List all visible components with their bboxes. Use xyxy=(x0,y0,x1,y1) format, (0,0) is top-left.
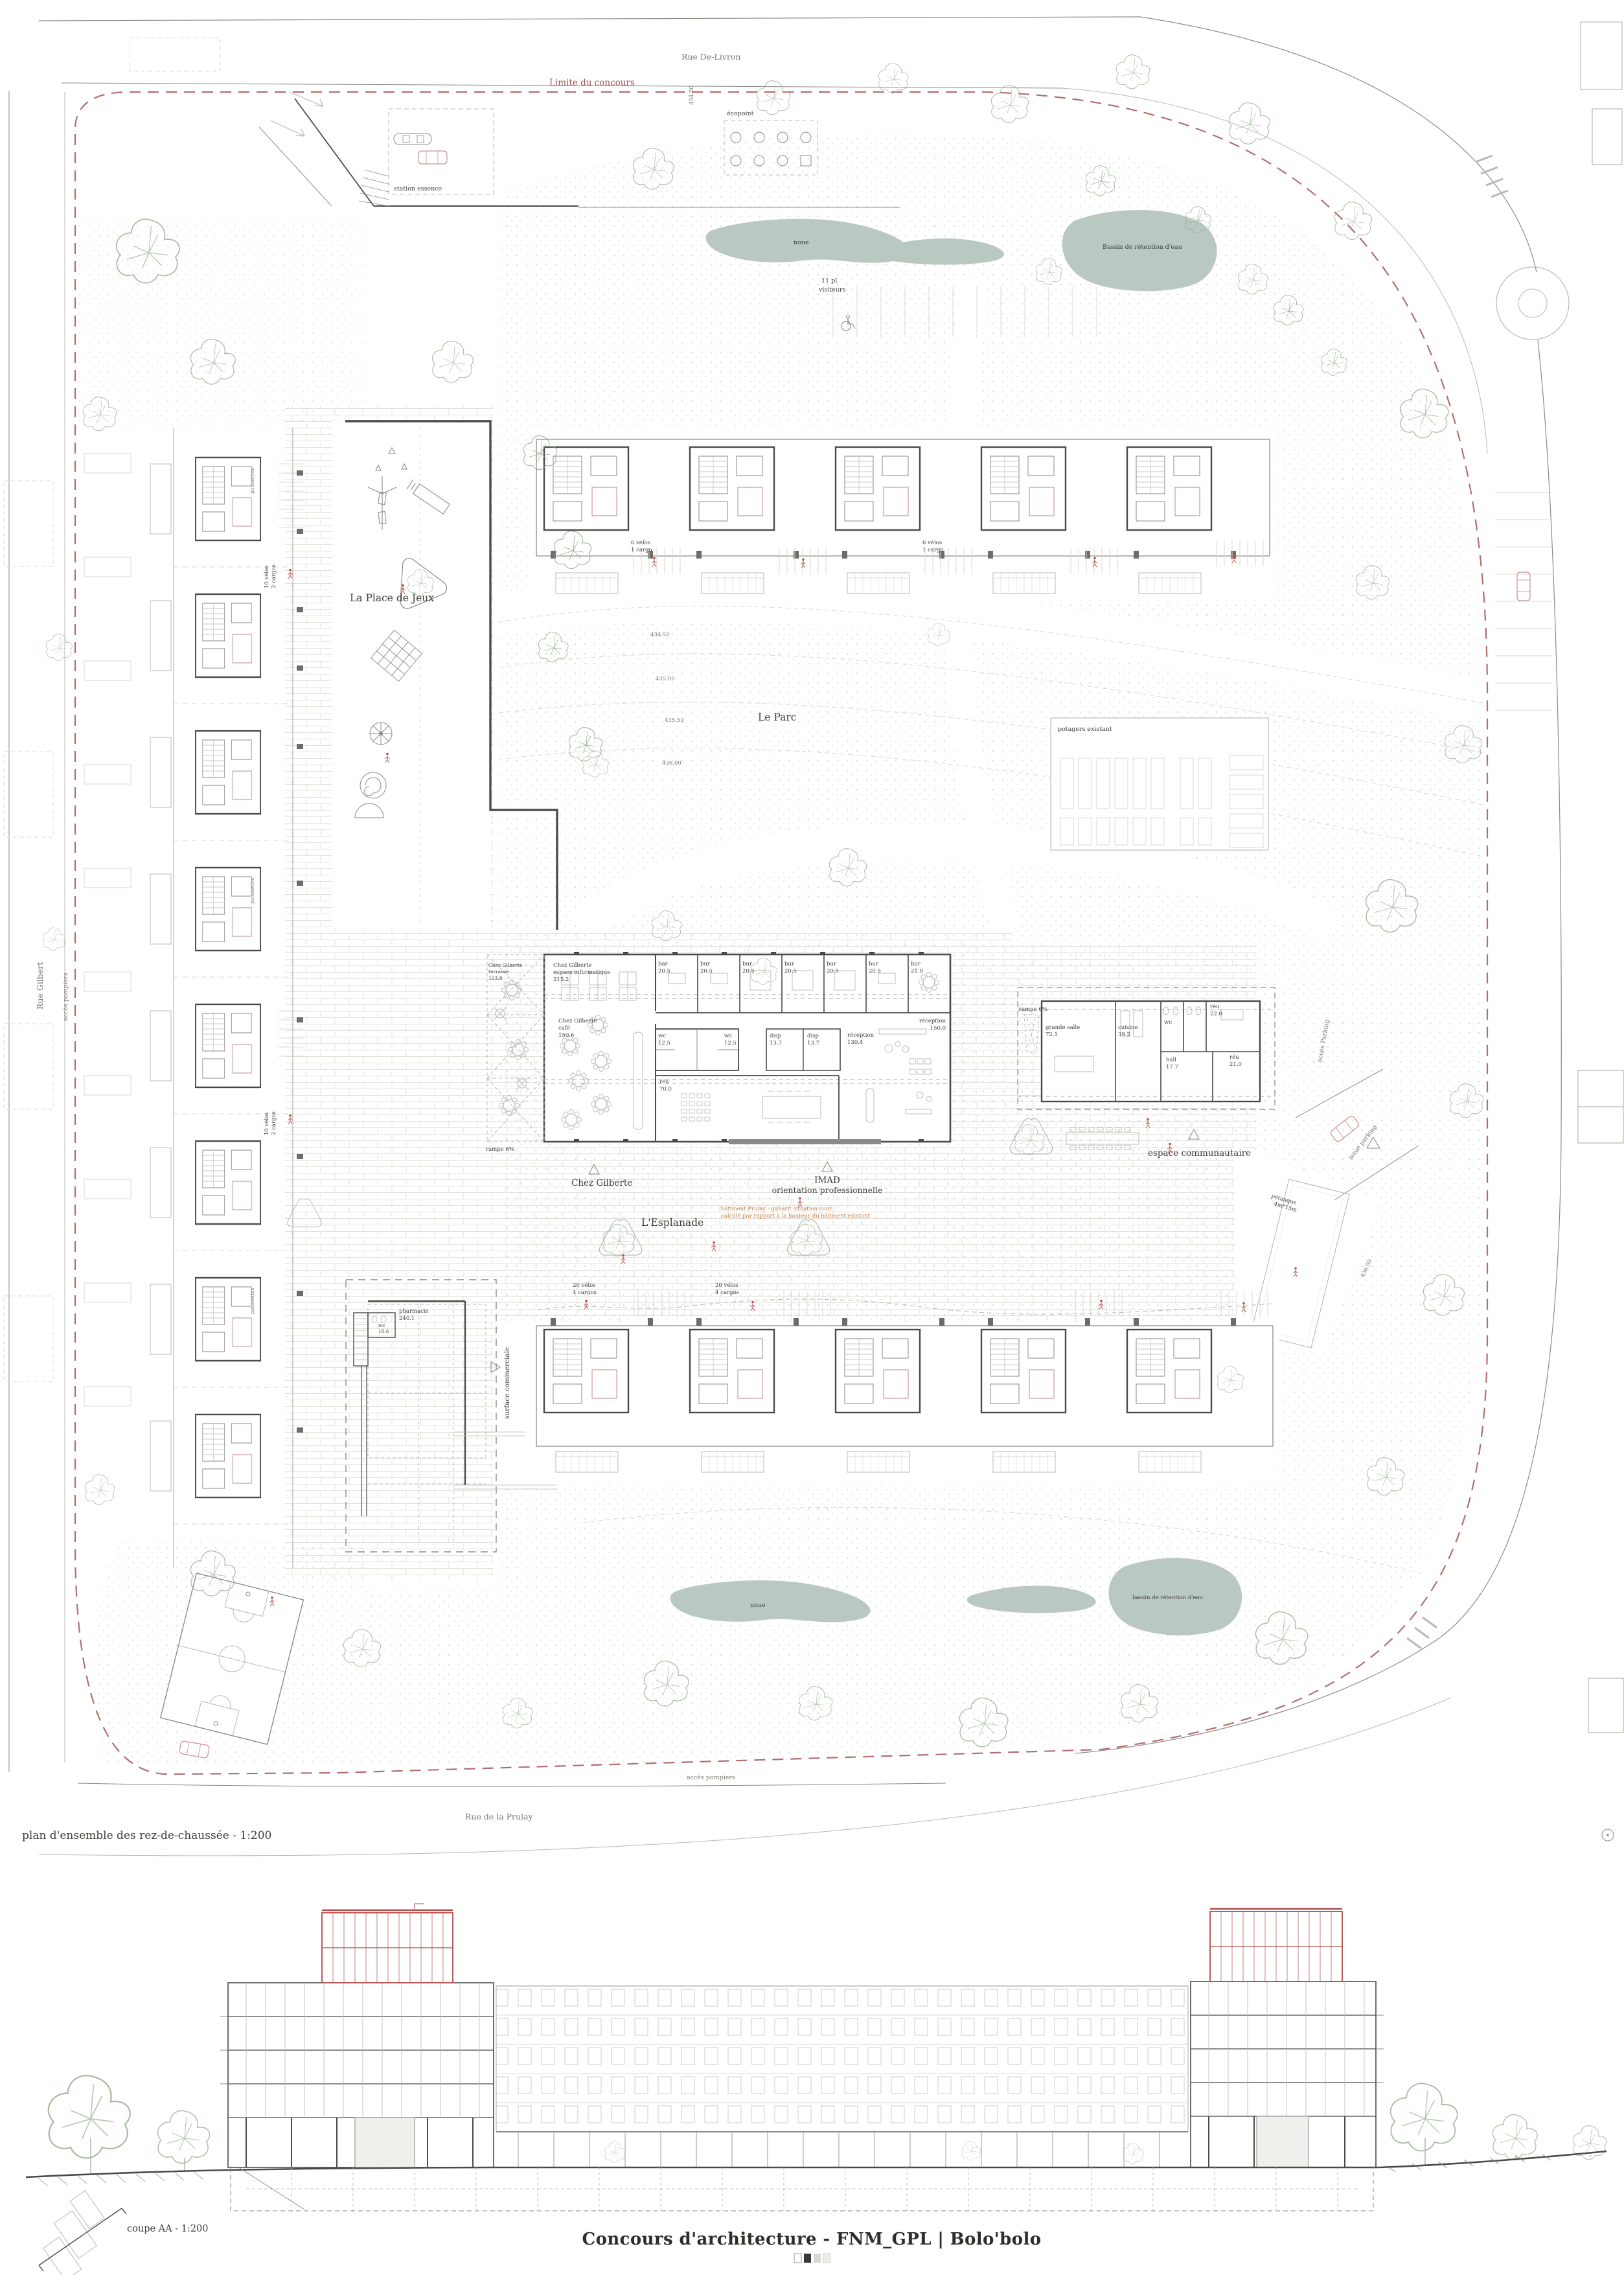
community-gardens: potagers existant xyxy=(1051,718,1268,850)
bike-count-label: 10 vélos xyxy=(263,565,270,588)
tree-icon xyxy=(1334,202,1371,240)
noue-top-label: noue xyxy=(794,239,809,246)
contour-label-43450: 434.50 xyxy=(650,632,670,638)
basin-top-label: Bassin de rétention d'eau xyxy=(1103,244,1182,251)
room-label: café xyxy=(558,1024,570,1032)
tree-icon xyxy=(962,2142,981,2160)
page-indicator xyxy=(794,2254,830,2263)
poussettes-label: poussettes xyxy=(249,467,255,494)
section-right-tower xyxy=(1191,1909,1384,2167)
room-label: 39.2 xyxy=(1118,1032,1130,1038)
room-label: 12.5 xyxy=(658,1040,670,1046)
room-label: bur xyxy=(700,961,711,967)
contour-label-43600: 436.00 xyxy=(662,760,681,767)
orange-note-line2: calculé par rapport à la hauteur du bâti… xyxy=(721,1212,871,1219)
street-label-top: Rue De-Livron xyxy=(681,52,740,62)
car-icon xyxy=(1517,572,1530,601)
carousel xyxy=(370,722,392,745)
room-label: 13.7 xyxy=(770,1040,782,1046)
tree-icon xyxy=(1391,2083,1458,2151)
tree-icon xyxy=(85,1475,115,1505)
room-label: 20.5 xyxy=(784,968,797,975)
tree-icon xyxy=(1229,103,1270,144)
room-label: disp xyxy=(770,1033,782,1039)
room-label: 21.0 xyxy=(1229,1061,1242,1068)
plan-caption: plan d'ensemble des rez-de-chaussée - 1:… xyxy=(22,1829,271,1842)
contour-label-43550: 435.50 xyxy=(665,717,684,724)
gardens-label: potagers existant xyxy=(1058,726,1112,733)
room-label: wc xyxy=(378,1322,385,1328)
tree-icon xyxy=(878,64,908,93)
tree-icon xyxy=(1116,55,1150,89)
visitors-parking-label-2: visiteurs xyxy=(818,286,845,294)
room-label: 20.5 xyxy=(869,968,881,975)
room-label: 13.7 xyxy=(807,1040,819,1046)
noue-bottom-label: noue xyxy=(750,1602,766,1609)
room-label: 70.0 xyxy=(659,1086,672,1092)
tree-icon xyxy=(432,341,473,383)
room-label: 20.5 xyxy=(827,968,839,975)
room-label: wc xyxy=(724,1033,732,1039)
chez-gilberte-label: Chez Gilberte xyxy=(571,1178,632,1188)
esplanade-label: L'Esplanade xyxy=(641,1217,703,1229)
room-label: 10.6 xyxy=(378,1328,389,1334)
room-label: bar xyxy=(658,961,669,967)
orange-note-line1: bâtiment Prulay - gabarit situation cour xyxy=(721,1205,832,1212)
room-label: Chez Gilberte xyxy=(553,962,591,969)
room-label: 17.7 xyxy=(1166,1064,1178,1070)
park-label: Le Parc xyxy=(758,711,796,723)
room-label: réu xyxy=(1210,1003,1220,1010)
contour-label-top: 434.50 xyxy=(689,86,695,105)
crosswalk-top-right xyxy=(1476,156,1508,197)
gas-station-label: station essence xyxy=(394,185,442,192)
bike-count-label: 1 cargo xyxy=(922,547,944,553)
room-label: hall xyxy=(1166,1057,1176,1063)
fire-access-left-label: accès pompiers xyxy=(62,973,69,1021)
tree-icon xyxy=(49,2075,130,2158)
contour-label-43500: 435.00 xyxy=(656,676,675,682)
community-space-label: espace communautaire xyxy=(1148,1148,1251,1159)
top-bar-building: 6 vélos 1 cargo 6 vélos 1 cargo xyxy=(531,428,1276,604)
room-label: 150.0 xyxy=(930,1025,946,1032)
room-label: Chez Gilberte xyxy=(488,962,523,968)
orientation-marker xyxy=(1602,1829,1614,1841)
boundary-label: Limite du concours xyxy=(549,78,635,88)
room-label: espace informatique xyxy=(553,969,610,976)
fire-access-bottom-label: accès pompiers xyxy=(687,1774,735,1781)
room-label: 130.4 xyxy=(847,1039,863,1046)
room-label: bur xyxy=(784,961,795,967)
room-label: bur xyxy=(827,961,837,967)
street-label-left: Rue Gilbert xyxy=(35,962,45,1010)
room-label: disp xyxy=(807,1033,819,1039)
basin-bottom-label: bassin de rétention d'eau xyxy=(1132,1594,1204,1601)
road-arrows xyxy=(271,92,323,136)
bike-count-label: 2 cargos xyxy=(271,1111,277,1135)
room-label: Chez Gilberte xyxy=(558,1018,597,1024)
poussettes-label: poussettes xyxy=(249,1288,255,1314)
tree-icon xyxy=(605,2142,626,2162)
room-label: 20.5 xyxy=(700,968,713,975)
competition-board: 434.50 435.00 435.50 436.00 434.50 436.0… xyxy=(0,0,1624,2275)
room-label: réu xyxy=(1229,1054,1239,1061)
bike-count-label: 10 vélos xyxy=(263,1112,270,1135)
existing-balconies-left xyxy=(84,454,131,1406)
bike-count-label: 4 cargos xyxy=(573,1289,597,1296)
car-icon xyxy=(418,151,447,164)
room-label: 21.0 xyxy=(911,968,923,975)
room-label: 123.8 xyxy=(488,975,503,981)
room-label: wc xyxy=(1164,1019,1172,1026)
bike-count-label: 20 vélos xyxy=(715,1282,738,1289)
room-label: réu xyxy=(659,1078,669,1085)
room-label: réception xyxy=(919,1017,946,1024)
room-label: 22.0 xyxy=(1210,1011,1222,1017)
imad-sublabel: orientation professionnelle xyxy=(772,1185,883,1195)
poussettes-label: poussettes xyxy=(249,877,255,904)
section-key-plan xyxy=(30,2191,126,2275)
tree-icon xyxy=(158,2110,210,2163)
room-label: bur xyxy=(869,961,879,967)
room-label: wc xyxy=(658,1033,666,1039)
left-bar-building: poussettes poussettes poussettes 10 vélo… xyxy=(150,428,303,1568)
commercial-label: surface commerciale xyxy=(503,1347,511,1419)
tree-icon xyxy=(757,81,790,115)
bike-count-label: 4 cargos xyxy=(715,1289,739,1296)
tree-icon xyxy=(43,928,65,951)
street-label-bottom: Rue de la Prulay xyxy=(465,1812,534,1821)
sheet-title: Concours d'architecture - FNM_GPL | Bolo… xyxy=(582,2230,1042,2249)
tree-icon xyxy=(1123,2143,1144,2164)
room-label: 215.2 xyxy=(553,976,569,983)
room-label: grande salle xyxy=(1046,1024,1080,1031)
tree-icon xyxy=(46,634,72,661)
bike-count-label: 6 vélos xyxy=(631,539,650,546)
gas-station: station essence xyxy=(389,109,494,194)
underground-level xyxy=(231,2167,1373,2211)
playground-label: La Place de Jeux xyxy=(350,592,434,604)
ecopoint-label: écopoint xyxy=(727,110,754,117)
bike-count-label: 20 vélos xyxy=(573,1282,596,1289)
chez-gilberte-imad-building: Chez Gilberte terrasse 123.8 Chez Gilber… xyxy=(486,952,950,1153)
section-left-tower xyxy=(220,1904,494,2167)
visitors-parking-label-1: 11 pl xyxy=(821,277,837,284)
room-label: 150.6 xyxy=(558,1032,574,1039)
ramp-label: rampe 6% xyxy=(1019,1006,1047,1013)
parking-row-right xyxy=(1495,492,1552,710)
section-drawing: coupe AA - 1:200 xyxy=(26,1904,1607,2275)
tree-icon xyxy=(1492,2115,1537,2160)
bike-count-label: 1 cargo xyxy=(631,547,652,553)
bike-count-label: 2 cargos xyxy=(271,564,277,588)
site-plan-sheet: 434.50 435.00 435.50 436.00 434.50 436.0… xyxy=(0,0,1624,2275)
ramp-label: rampe 6% xyxy=(486,1146,514,1153)
imad-label: IMAD xyxy=(814,1175,840,1186)
room-label: cuisine xyxy=(1118,1024,1138,1031)
room-label: 240.1 xyxy=(399,1315,415,1322)
room-label: 72.1 xyxy=(1046,1032,1058,1038)
room-label: pharmacie xyxy=(399,1308,429,1315)
bike-count-label: 6 vélos xyxy=(922,539,942,546)
room-label: bur xyxy=(742,961,753,967)
west-balconies xyxy=(150,464,171,1491)
section-caption: coupe AA - 1:200 xyxy=(127,2224,209,2234)
crosswalk-bottom-right xyxy=(1407,1617,1437,1648)
room-label: terrasse xyxy=(488,969,509,975)
tree-icon xyxy=(991,86,1028,123)
room-label: bur xyxy=(911,961,921,967)
room-label: 20.5 xyxy=(742,968,755,975)
room-label: 12.5 xyxy=(724,1040,737,1046)
room-label: 20.5 xyxy=(658,968,670,975)
room-label: réception xyxy=(847,1032,875,1039)
